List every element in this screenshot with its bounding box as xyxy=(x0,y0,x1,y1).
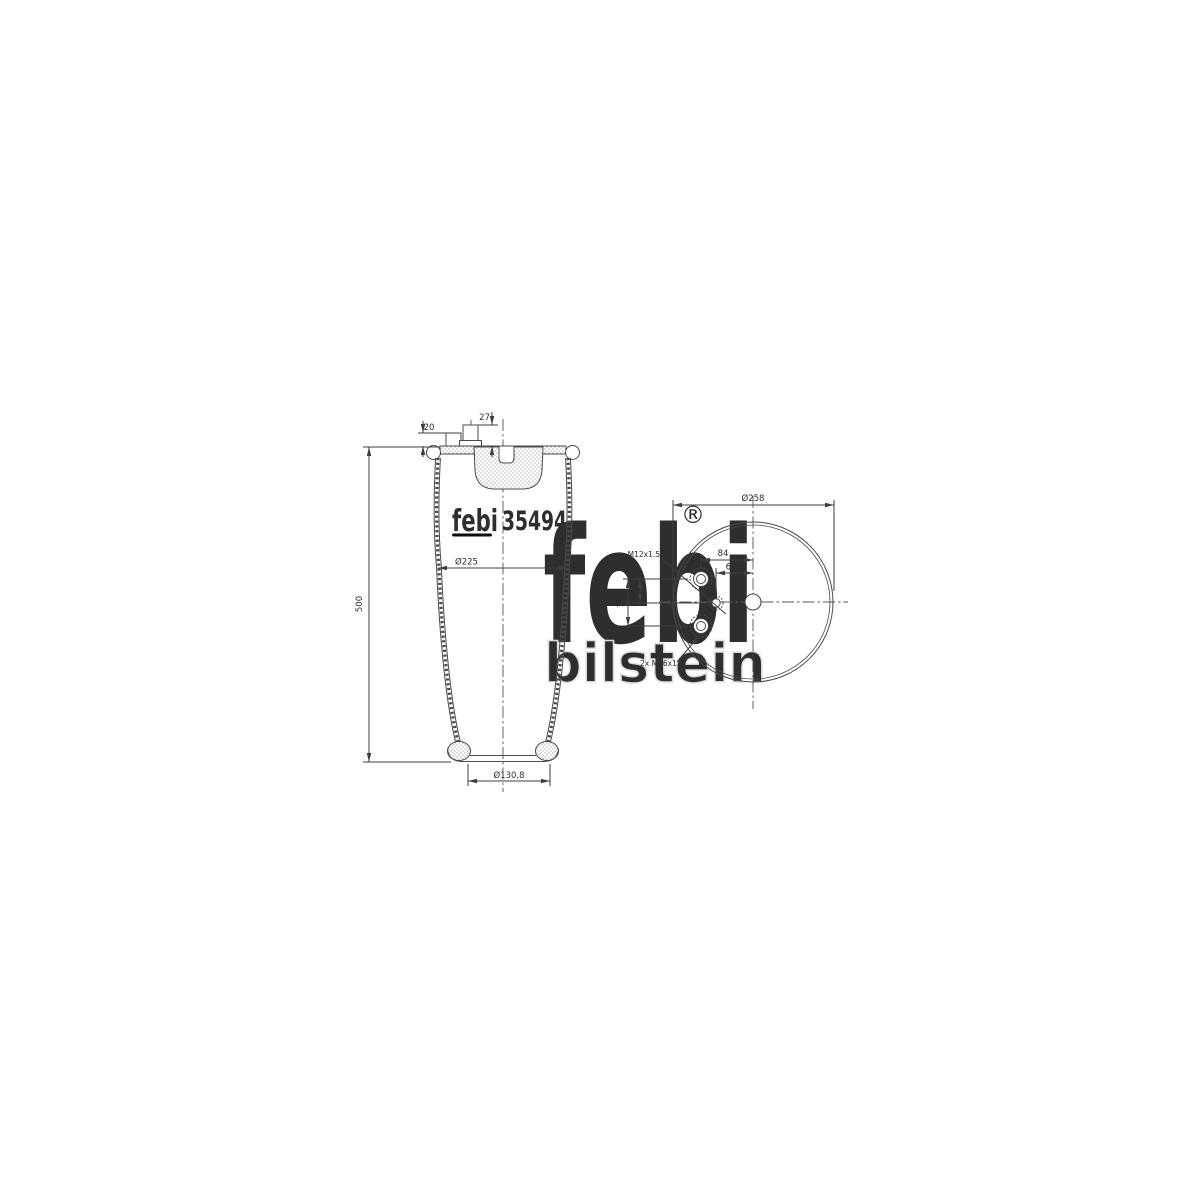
dim-stud-offset-y-half-label: 35 xyxy=(630,586,640,597)
dim-stud-left-label: 20 xyxy=(424,423,435,433)
bumper-slot xyxy=(499,446,514,463)
air-spring-technical-drawing: febi ® bilstein xyxy=(0,0,1200,1200)
bead-left xyxy=(427,446,441,460)
dim-stud-offset-x-label: 84 xyxy=(718,549,729,559)
air-fitting-studs xyxy=(446,425,482,446)
dim-body-diameter-label: Ø225 xyxy=(455,557,478,568)
technical-drawing-canvas: febi ® bilstein xyxy=(0,0,1200,1200)
dim-port-offset-x-label: 60 xyxy=(726,563,737,573)
dim-stud-spacing-y-label: 70 xyxy=(617,597,627,608)
bead-right xyxy=(566,446,580,460)
internal-bumper xyxy=(474,446,543,489)
part-number: 35494 xyxy=(502,506,567,537)
thread-studs-label: 2x M16x1.5 xyxy=(640,659,684,668)
dim-stud-right-label: 27 xyxy=(479,413,490,423)
dim-overall-height-label: 500 xyxy=(355,596,365,612)
dim-piston-diameter-label: Ø130,8 xyxy=(493,770,524,781)
center-air-port xyxy=(745,594,761,610)
dim-piston-diameter: Ø130,8 xyxy=(468,764,550,786)
dim-plate-diameter-label: Ø258 xyxy=(742,493,765,504)
product-branding: febi 35494 xyxy=(452,504,567,539)
dim-overall-height: 500 xyxy=(355,447,451,762)
thread-center-label: M12x1.5 xyxy=(628,550,661,559)
febi-logo-underline xyxy=(452,534,492,537)
